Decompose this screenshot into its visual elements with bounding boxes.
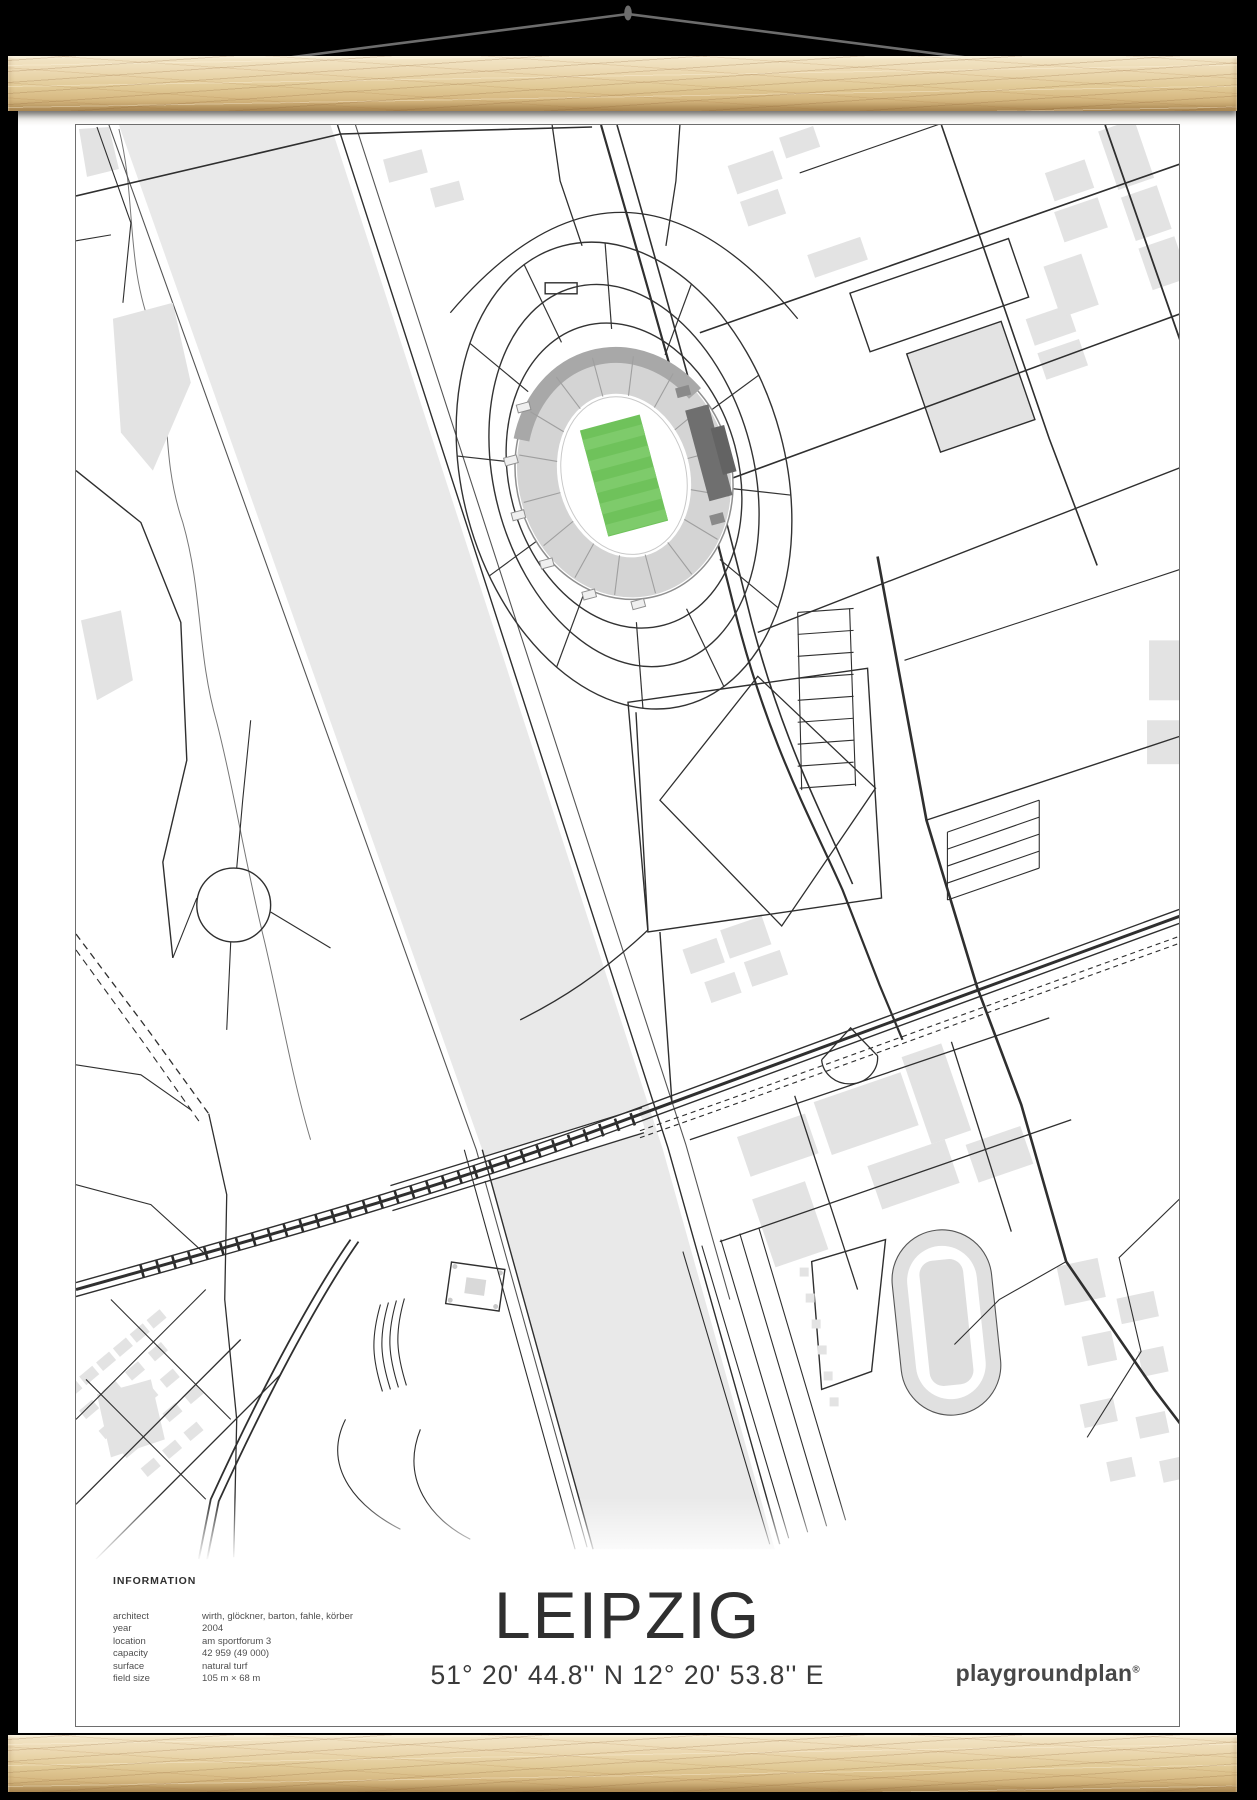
map-frame: [75, 124, 1180, 1727]
sports-courts: [947, 800, 1039, 900]
string-pin: [624, 6, 632, 21]
brand-logo: playgroundplan®: [956, 1660, 1140, 1687]
park-areas: [79, 127, 191, 1457]
grandstand-steps: [374, 1299, 407, 1392]
map-fade: [76, 1497, 1179, 1561]
registered-mark: ®: [1132, 1664, 1140, 1675]
athletics-track-stadium: [887, 1225, 1006, 1420]
wooden-rail-top: [8, 56, 1237, 111]
poster-photo-scene: INFORMATION architectwirth, glöckner, ba…: [0, 0, 1257, 1800]
string-line: [270, 14, 986, 60]
monument-square: [446, 1262, 505, 1311]
poster-title: LEIPZIG: [75, 1582, 1180, 1648]
stadium-map: [76, 125, 1179, 1726]
roundabout-circle: [197, 868, 271, 942]
wooden-rail-bottom: [8, 1735, 1237, 1792]
poster: INFORMATION architectwirth, glöckner, ba…: [18, 100, 1236, 1733]
